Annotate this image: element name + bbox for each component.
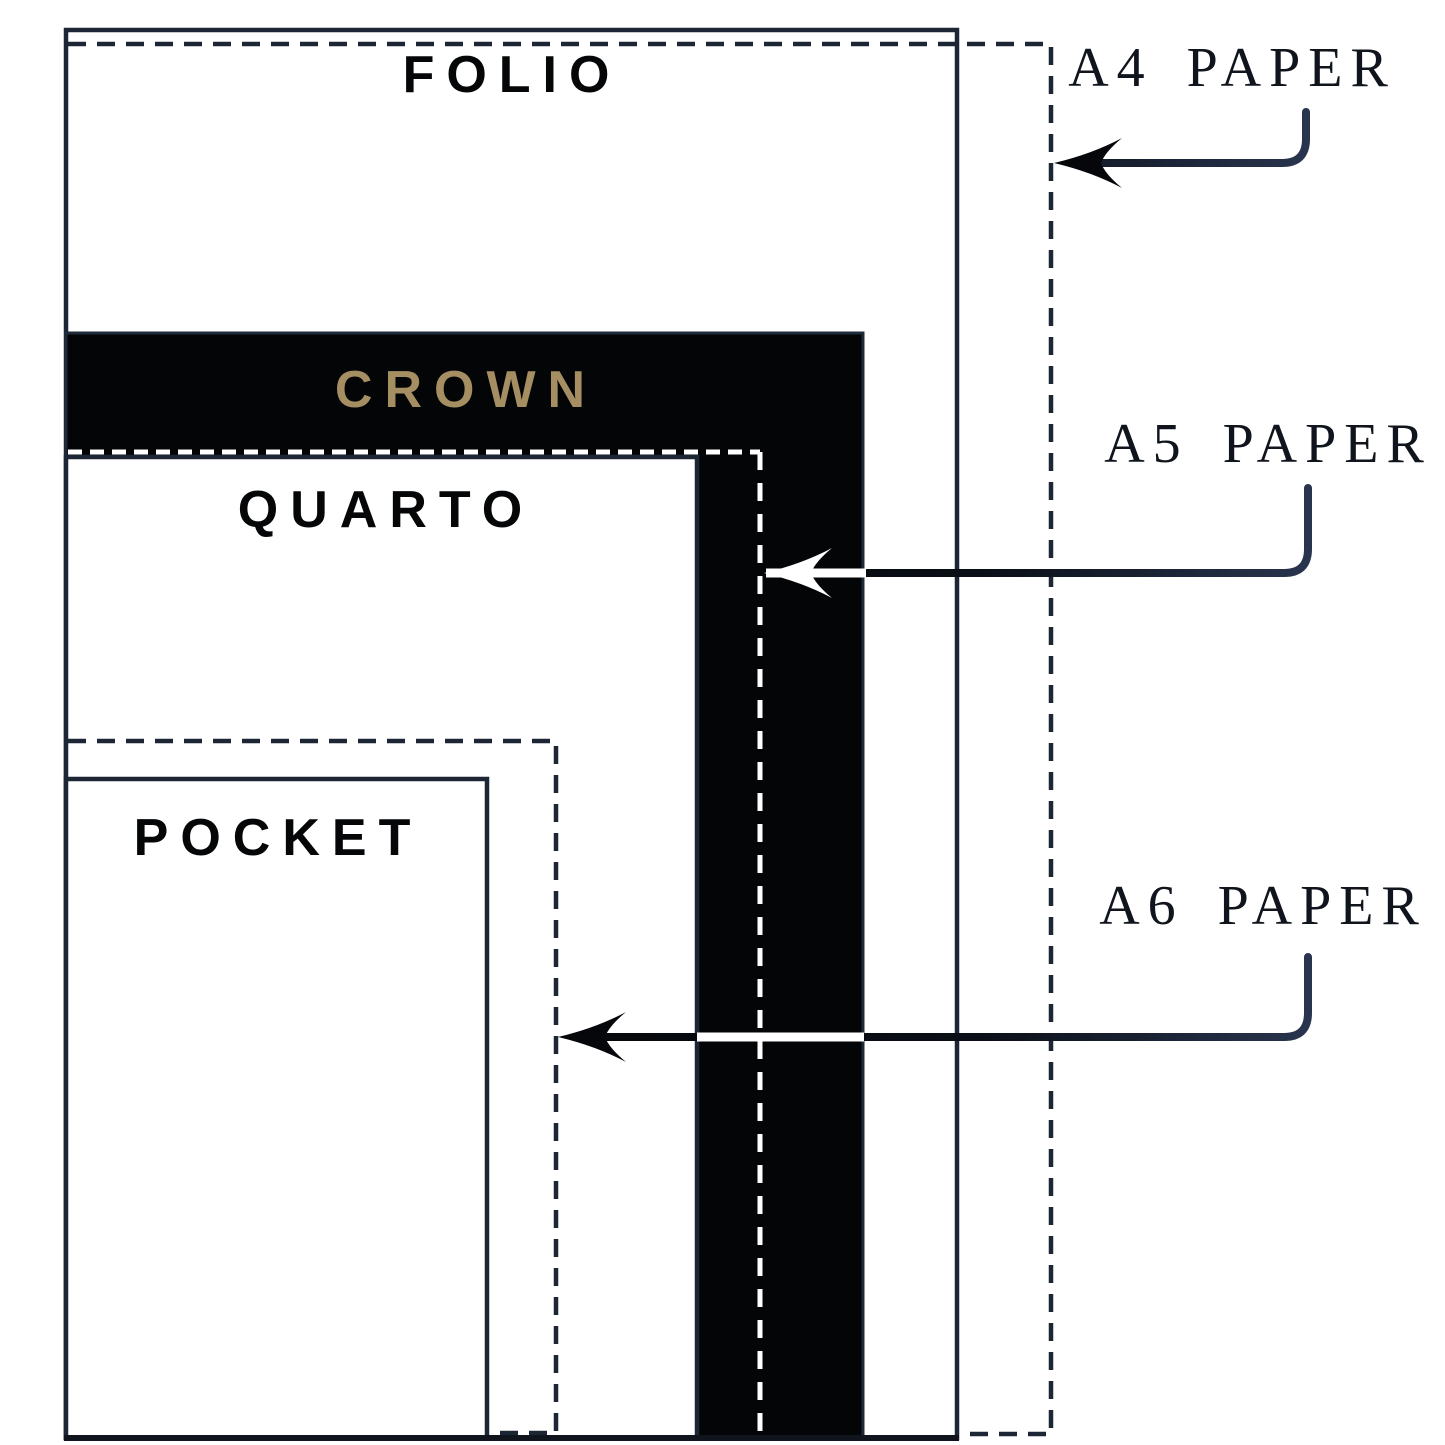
a4-paper-label: A4 PAPER [1068, 37, 1396, 99]
crown-label: CROWN [335, 361, 597, 419]
a5-paper-label: A5 PAPER [1104, 413, 1432, 475]
quarto-label: QUARTO [238, 481, 534, 539]
a4-arrow [1100, 112, 1306, 163]
diagram-svg: FOLIO CROWN QUARTO POCKET A4 PAPER A5 PA… [0, 0, 1445, 1445]
folio-label: FOLIO [403, 46, 622, 104]
size-comparison-diagram: FOLIO CROWN QUARTO POCKET A4 PAPER A5 PA… [0, 0, 1445, 1445]
pocket-rect [66, 779, 487, 1438]
a6-paper-label: A6 PAPER [1099, 875, 1427, 937]
pocket-label: POCKET [134, 809, 423, 867]
